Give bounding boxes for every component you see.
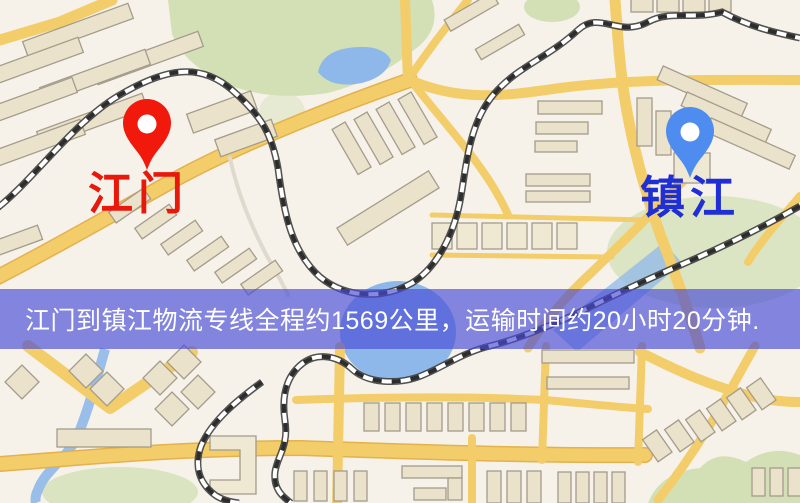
road	[638, 346, 642, 462]
building	[788, 468, 800, 496]
building	[487, 471, 501, 503]
building	[532, 223, 552, 249]
origin-city-label: 江门	[88, 171, 188, 216]
building	[542, 350, 634, 363]
road	[405, 0, 408, 82]
building	[538, 101, 602, 114]
building	[402, 466, 462, 478]
building	[752, 468, 765, 496]
destination-pin-hole	[681, 123, 700, 142]
building	[414, 488, 446, 500]
building	[657, 0, 679, 12]
map-canvas	[0, 0, 800, 503]
building	[427, 403, 442, 431]
building	[507, 471, 521, 503]
building	[385, 403, 400, 431]
building	[683, 0, 705, 12]
building	[536, 122, 588, 134]
building	[406, 403, 421, 431]
building	[457, 223, 477, 249]
building	[507, 223, 527, 249]
road	[432, 255, 612, 257]
building	[57, 429, 151, 447]
building	[557, 223, 577, 249]
building	[526, 191, 590, 202]
building	[448, 403, 463, 431]
route-info-text: 江门到镇江物流专线全程约1569公里，运输时间约20小时20分钟.	[0, 301, 760, 337]
building	[612, 472, 625, 503]
building	[314, 471, 327, 501]
building	[558, 472, 571, 503]
building	[490, 403, 505, 431]
building	[482, 223, 502, 249]
building	[576, 472, 589, 503]
building	[448, 478, 462, 500]
origin-pin-hole	[138, 115, 157, 134]
building	[469, 403, 484, 431]
building	[334, 471, 347, 501]
building	[547, 377, 629, 389]
building	[364, 403, 379, 431]
building	[527, 471, 541, 503]
building	[511, 403, 526, 431]
building	[637, 98, 652, 146]
building	[526, 174, 590, 186]
building	[294, 471, 307, 501]
map-view[interactable]: 江门 镇江 江门到镇江物流专线全程约1569公里，运输时间约20小时20分钟.	[0, 0, 800, 503]
destination-city-label: 镇江	[640, 175, 740, 220]
route-info-banner: 江门到镇江物流专线全程约1569公里，运输时间约20小时20分钟.	[0, 289, 800, 349]
building	[594, 472, 607, 503]
building	[631, 0, 653, 12]
building	[354, 471, 367, 501]
building	[535, 141, 577, 152]
building	[770, 468, 783, 496]
